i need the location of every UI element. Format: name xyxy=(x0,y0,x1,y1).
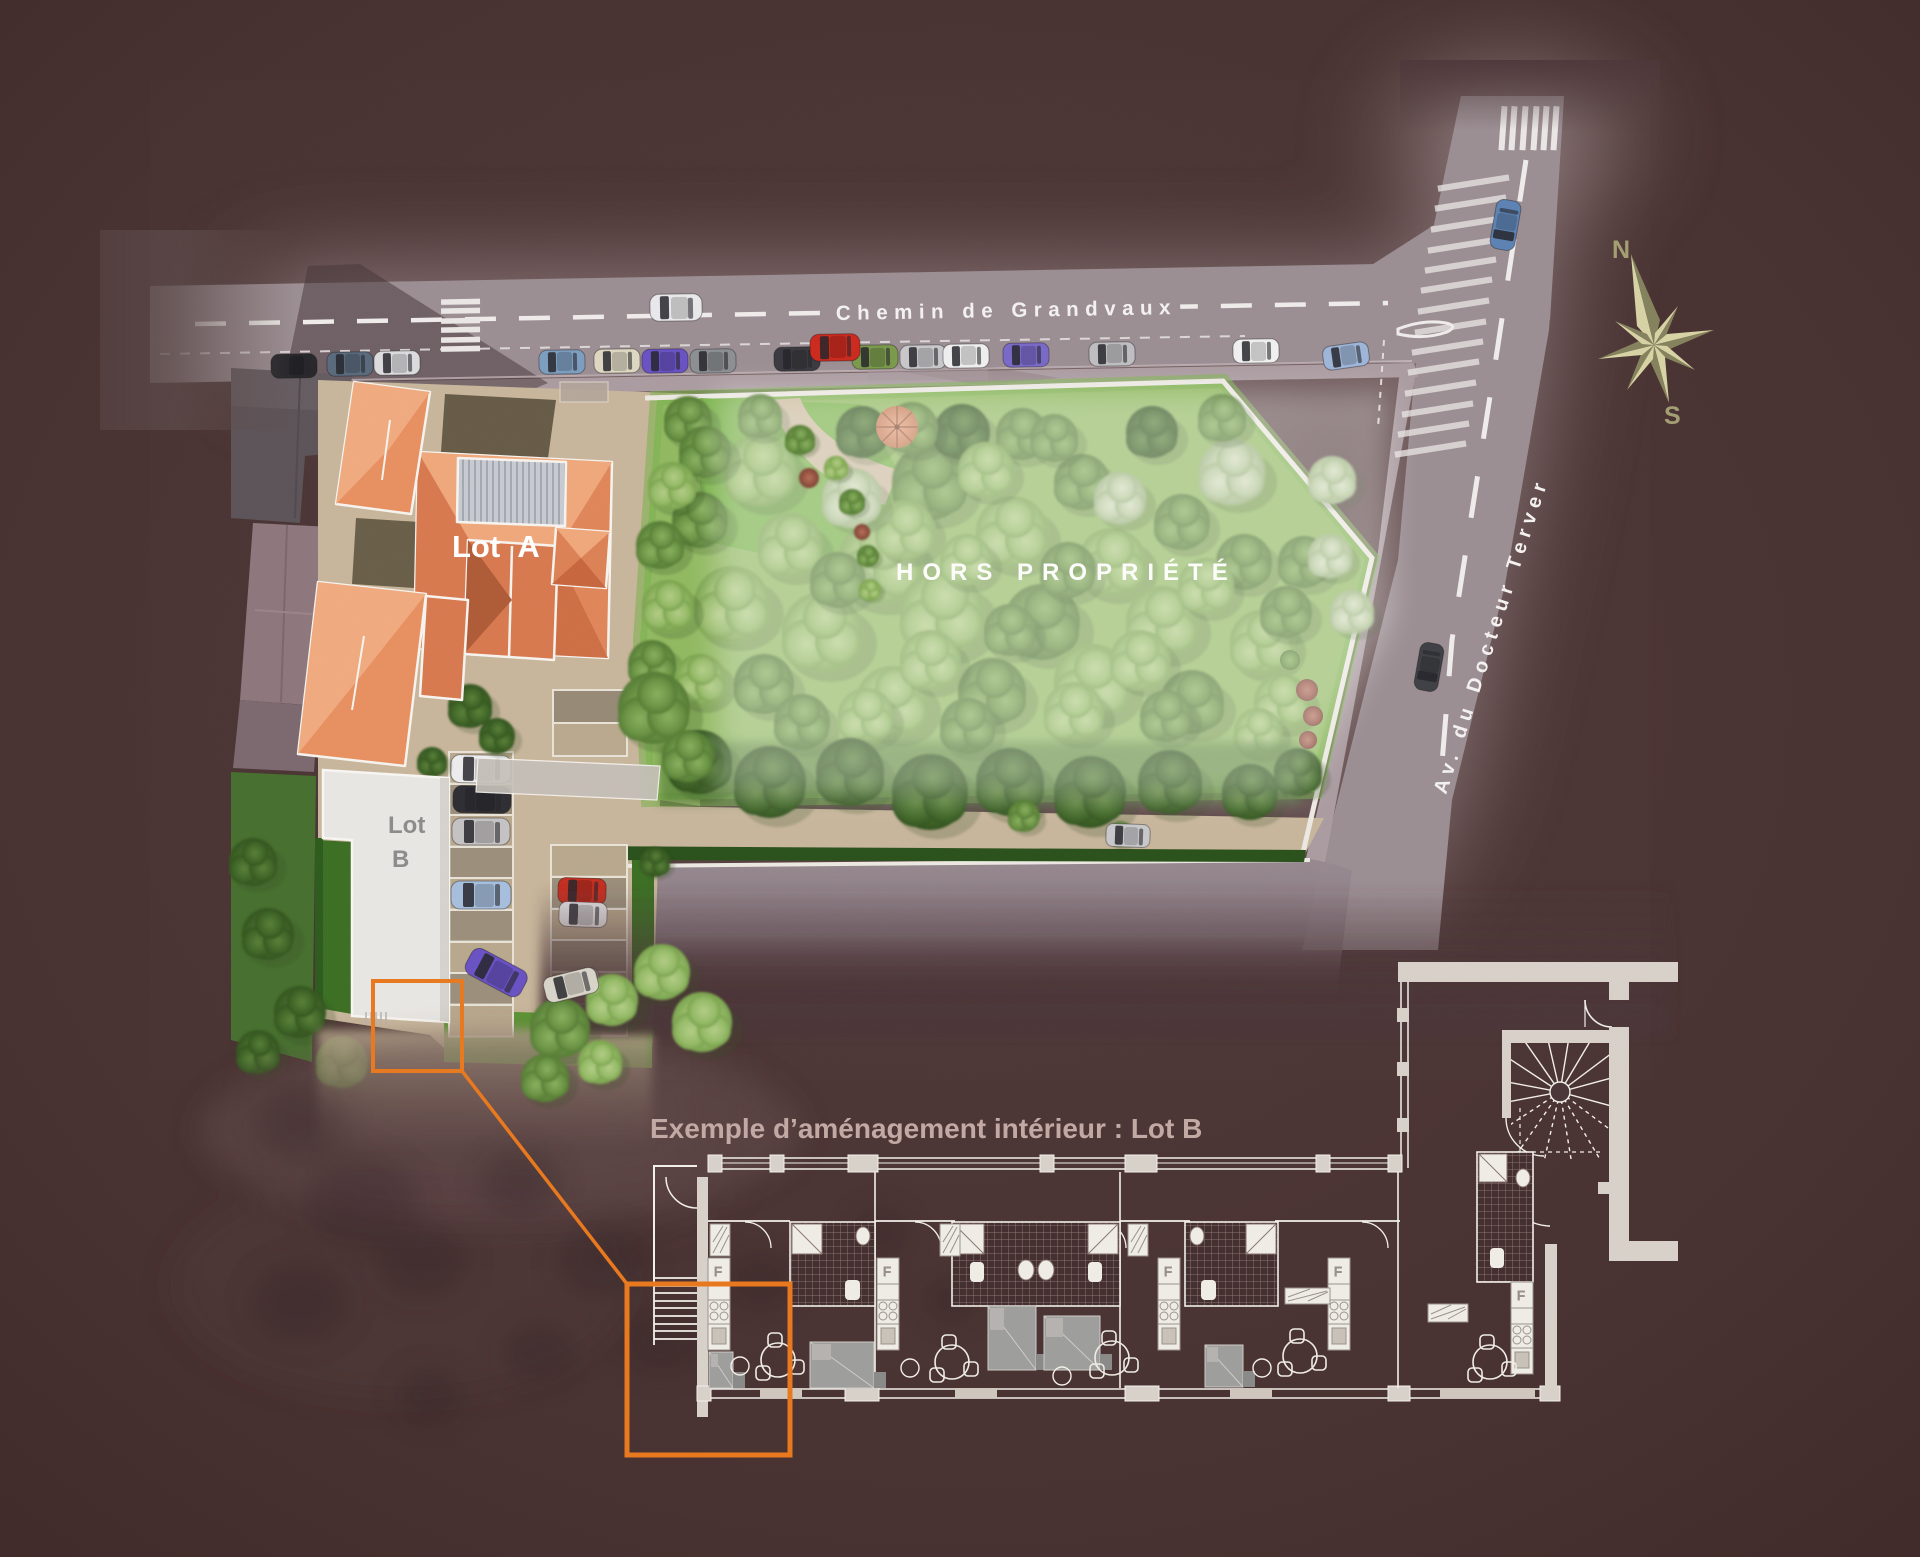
svg-text:F: F xyxy=(1164,1264,1172,1279)
svg-text:F: F xyxy=(1334,1264,1342,1279)
svg-text:S: S xyxy=(1664,402,1681,430)
svg-text:F: F xyxy=(1517,1288,1525,1303)
svg-text:F: F xyxy=(883,1264,891,1279)
svg-text:Exemple d’aménagement intérieu: Exemple d’aménagement intérieur : Lot B xyxy=(650,1113,1202,1144)
svg-text:F: F xyxy=(714,1264,722,1279)
